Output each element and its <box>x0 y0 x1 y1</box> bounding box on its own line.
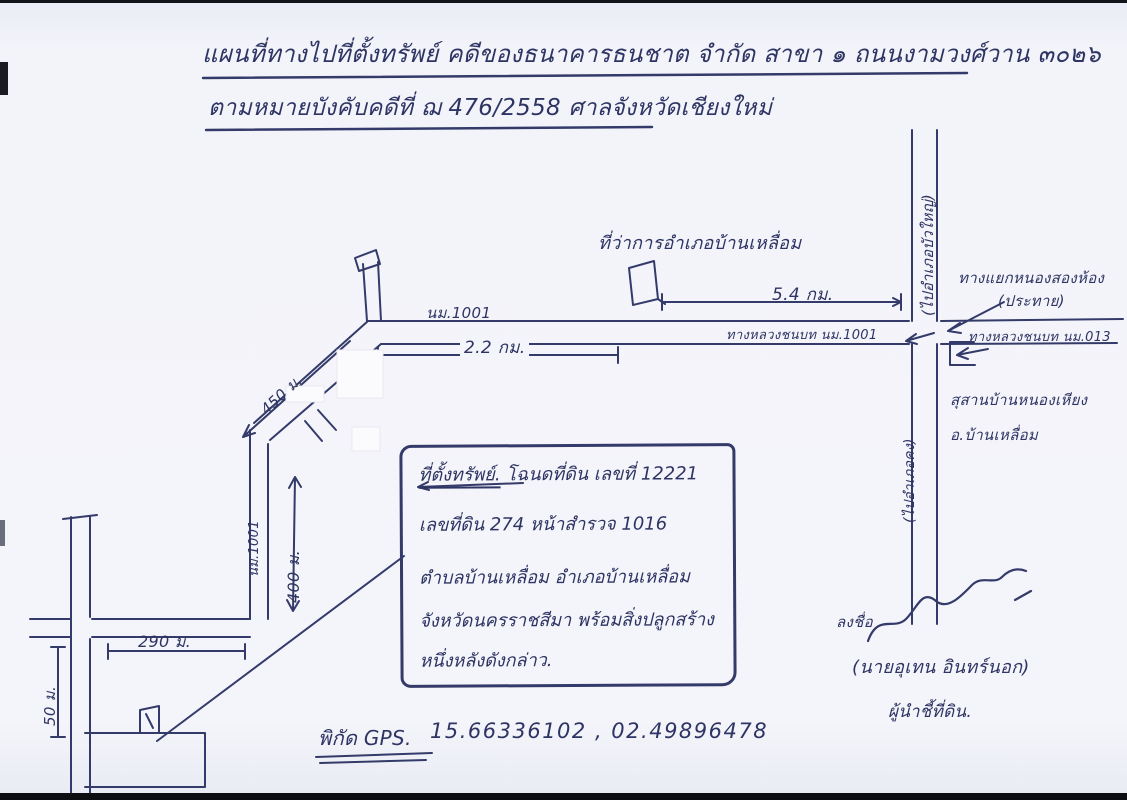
cemetery-label-line1: สุสานบ้านหนองเหียง <box>950 388 1087 412</box>
gps-coordinates: 15.66336102 , 02.49896478 <box>430 719 768 743</box>
south-direction-label: (ไปอำเภอคง) <box>899 438 921 523</box>
intersection-arrow <box>906 333 934 344</box>
signature-name: (นายอุเทน อินทร์นอก) <box>852 652 1030 681</box>
property-info-box: ที่ตั้งทรัพย์. โฉนดที่ดิน เลขที่ 12221 เ… <box>399 443 736 688</box>
distance-50m-label: 50 ม. <box>38 686 62 726</box>
scan-mark-left <box>0 62 8 95</box>
scanned-map-document: แผนที่ทางไปที่ตั้งทรัพย์ คดีของธนาคารธนช… <box>0 0 1127 800</box>
info-line1: ที่ตั้งทรัพย์. โฉนดที่ดิน เลขที่ 12221 <box>418 458 698 488</box>
map-title-line1: แผนที่ทางไปที่ตั้งทรัพย์ คดีของธนาคารธนช… <box>202 34 1101 73</box>
junction-label-line2: (ประทาย) <box>998 289 1065 313</box>
pointer-line <box>157 556 404 741</box>
road-spur-flag <box>355 250 381 321</box>
gps-label: พิกัด GPS. <box>318 722 412 754</box>
info-line2: เลขที่ดิน 274 หน้าสำรวจ 1016 <box>419 508 668 538</box>
distance-2-2km-label: 2.2 กม. <box>460 334 529 361</box>
map-title-line2: ตามหมายบังคับคดีที่ ฌ 476/2558 ศาลจังหวั… <box>208 90 772 126</box>
scan-mark-left2 <box>0 520 5 546</box>
info-line1-rest: โฉนดที่ดิน เลขที่ 12221 <box>506 463 698 485</box>
gps-underline <box>316 753 432 763</box>
info-line4: จังหวัดนครราชสีมา พร้อมสิ่งปลูกสร้าง <box>419 604 714 635</box>
district-office-building <box>629 261 665 305</box>
vertical-road-label: นม.1001 <box>243 520 264 577</box>
district-office-label: ที่ว่าการอำเภอบ้านเหลื่อม <box>598 228 801 257</box>
signature-role: ผู้นำชี้ที่ดิน. <box>888 698 972 725</box>
distance-5-4km-label: 5.4 กม. <box>772 281 833 308</box>
cemetery-label-line2: อ.บ้านเหลื่อม <box>950 423 1038 447</box>
info-line3: ตำบลบ้านเหลื่อม อำเภอบ้านเหลื่อม <box>419 561 690 591</box>
info-line5: หนึ่งหลังดังกล่าว. <box>419 645 552 675</box>
highway-left-label: นม.1001 <box>426 301 491 325</box>
signature-prefix: ลงชื่อ <box>836 610 873 634</box>
scan-edge-bottom <box>0 793 1127 800</box>
distance-400m-label: 400 ม. <box>282 550 307 603</box>
junction-label-line1: ทางแยกหนองสองห้อง <box>958 266 1104 290</box>
distance-290m-label: 290 ม. <box>138 630 191 655</box>
main-road-label: ทางหลวงชนบท นม.1001 <box>726 324 877 345</box>
signature-scribble <box>868 569 1031 641</box>
scan-edge-top <box>0 0 1127 3</box>
whiteout-patches <box>286 350 383 451</box>
east-road-label: ทางหลวงชนบท นม.013 <box>968 326 1111 347</box>
title1-underline <box>203 73 967 78</box>
info-line1-title: ที่ตั้งทรัพย์. <box>418 464 500 488</box>
north-direction-label: (ไปอำเภอบัวใหญ่) <box>916 194 940 316</box>
title2-underline <box>206 127 652 130</box>
